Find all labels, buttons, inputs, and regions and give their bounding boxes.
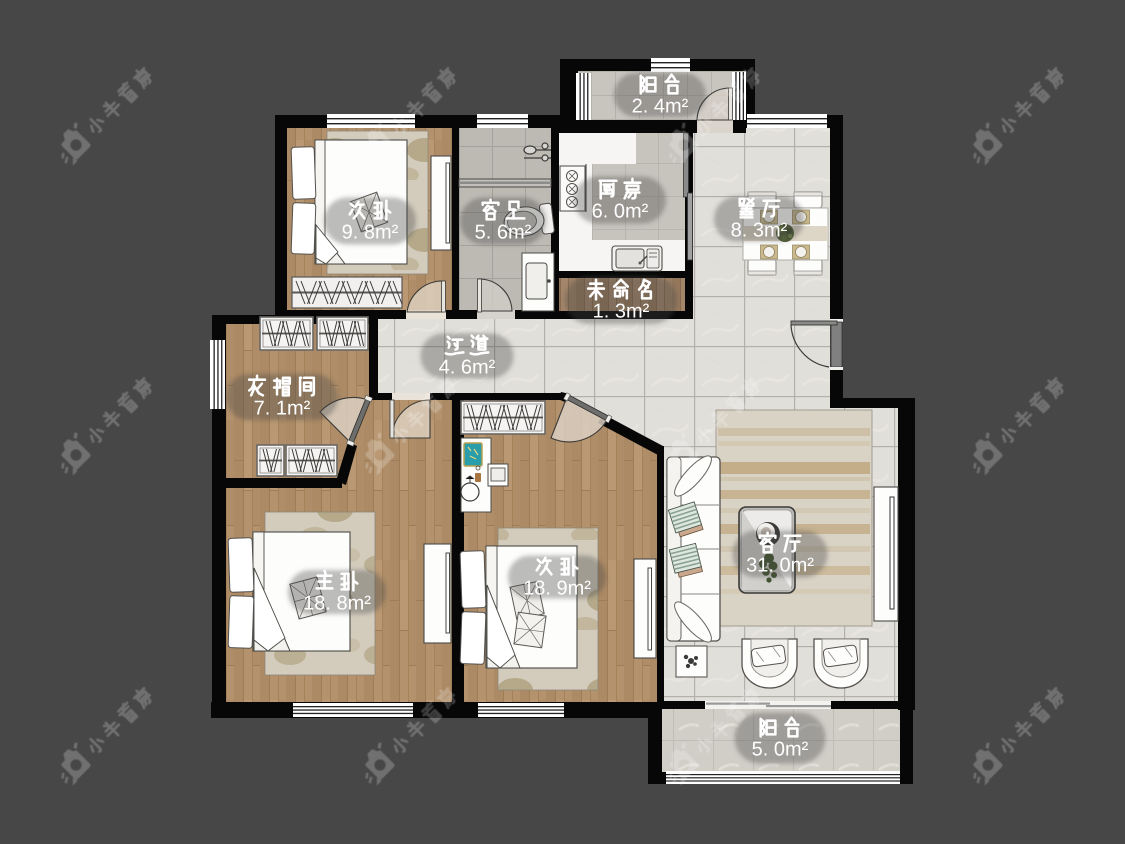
svg-text:8. 3m²: 8. 3m² [731,219,788,241]
svg-text:6. 0m²: 6. 0m² [592,200,649,222]
svg-text:18. 9m²: 18. 9m² [523,577,591,599]
svg-text:5. 6m²: 5. 6m² [475,221,532,243]
svg-text:1. 3m²: 1. 3m² [593,300,650,322]
svg-text:7. 1m²: 7. 1m² [254,397,311,419]
svg-text:18. 8m²: 18. 8m² [303,592,371,614]
svg-text:5. 0m²: 5. 0m² [752,738,809,760]
svg-text:2. 4m²: 2. 4m² [632,95,689,117]
svg-text:4. 6m²: 4. 6m² [439,356,496,378]
svg-text:9. 8m²: 9. 8m² [342,221,399,243]
svg-text:31. 0m²: 31. 0m² [746,554,814,576]
